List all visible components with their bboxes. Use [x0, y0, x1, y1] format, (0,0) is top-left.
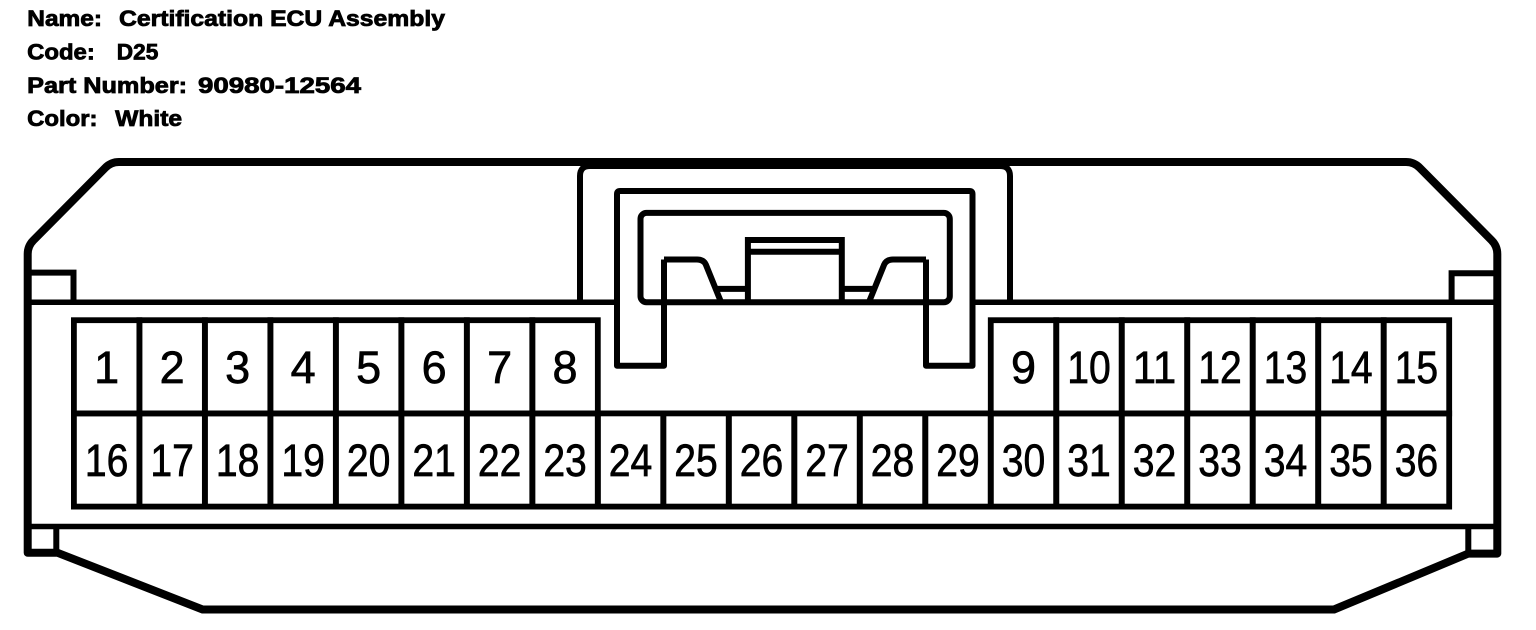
svg-text:3: 3 [225, 342, 250, 393]
svg-text:6: 6 [422, 342, 447, 393]
svg-text:28: 28 [871, 435, 915, 486]
svg-text:11: 11 [1133, 342, 1177, 393]
svg-text:10: 10 [1067, 342, 1111, 393]
svg-text:21: 21 [412, 435, 456, 486]
svg-text:90980-12564: 90980-12564 [198, 73, 362, 98]
svg-text:13: 13 [1264, 342, 1308, 393]
svg-text:4: 4 [291, 342, 316, 393]
svg-text:32: 32 [1133, 435, 1177, 486]
svg-text:14: 14 [1329, 342, 1373, 393]
svg-text:5: 5 [356, 342, 381, 393]
svg-text:34: 34 [1264, 435, 1308, 486]
svg-text:30: 30 [1002, 435, 1046, 486]
svg-text:White: White [115, 106, 182, 131]
svg-text:24: 24 [609, 435, 653, 486]
svg-text:Certification ECU Assembly: Certification ECU Assembly [119, 6, 446, 31]
svg-text:31: 31 [1067, 435, 1111, 486]
svg-text:16: 16 [85, 435, 129, 486]
svg-text:29: 29 [936, 435, 980, 486]
svg-text:Color:: Color: [27, 106, 97, 131]
svg-text:2: 2 [160, 342, 185, 393]
svg-text:26: 26 [740, 435, 784, 486]
svg-text:25: 25 [674, 435, 718, 486]
svg-text:23: 23 [543, 435, 587, 486]
svg-text:Code:: Code: [27, 39, 95, 64]
svg-text:12: 12 [1198, 342, 1242, 393]
svg-text:1: 1 [94, 342, 119, 393]
svg-text:35: 35 [1329, 435, 1373, 486]
svg-text:17: 17 [150, 435, 194, 486]
svg-text:36: 36 [1395, 435, 1439, 486]
svg-text:9: 9 [1011, 342, 1036, 393]
svg-text:15: 15 [1395, 342, 1439, 393]
svg-text:D25: D25 [117, 39, 159, 64]
svg-text:19: 19 [281, 435, 325, 486]
svg-text:22: 22 [478, 435, 522, 486]
svg-text:20: 20 [347, 435, 391, 486]
svg-text:18: 18 [216, 435, 260, 486]
svg-text:27: 27 [805, 435, 849, 486]
svg-text:Name:: Name: [27, 6, 102, 31]
svg-text:Part Number:: Part Number: [27, 73, 187, 98]
svg-text:7: 7 [487, 342, 512, 393]
svg-text:33: 33 [1198, 435, 1242, 486]
svg-text:8: 8 [553, 342, 578, 393]
